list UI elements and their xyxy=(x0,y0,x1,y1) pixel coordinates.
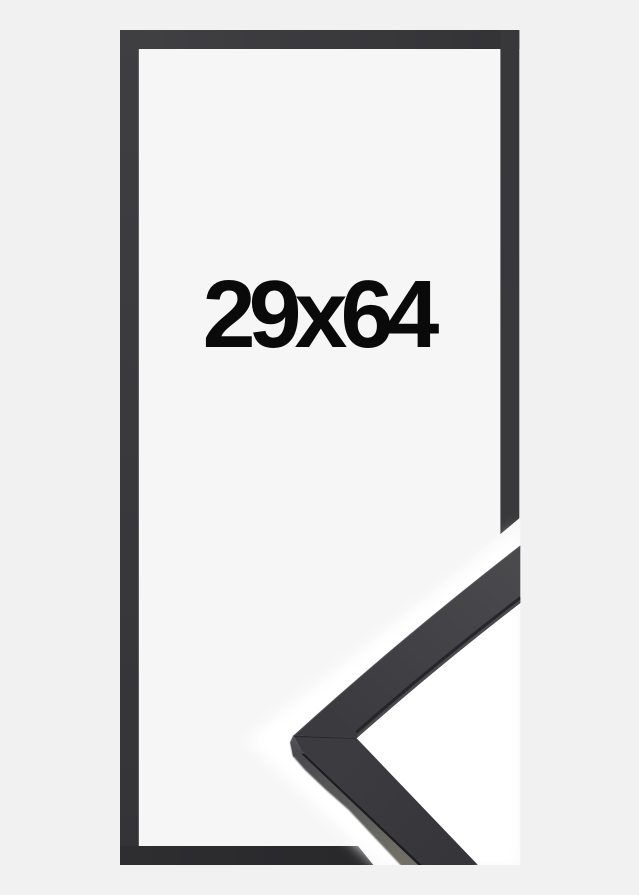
svg-text:29x64: 29x64 xyxy=(203,262,440,368)
